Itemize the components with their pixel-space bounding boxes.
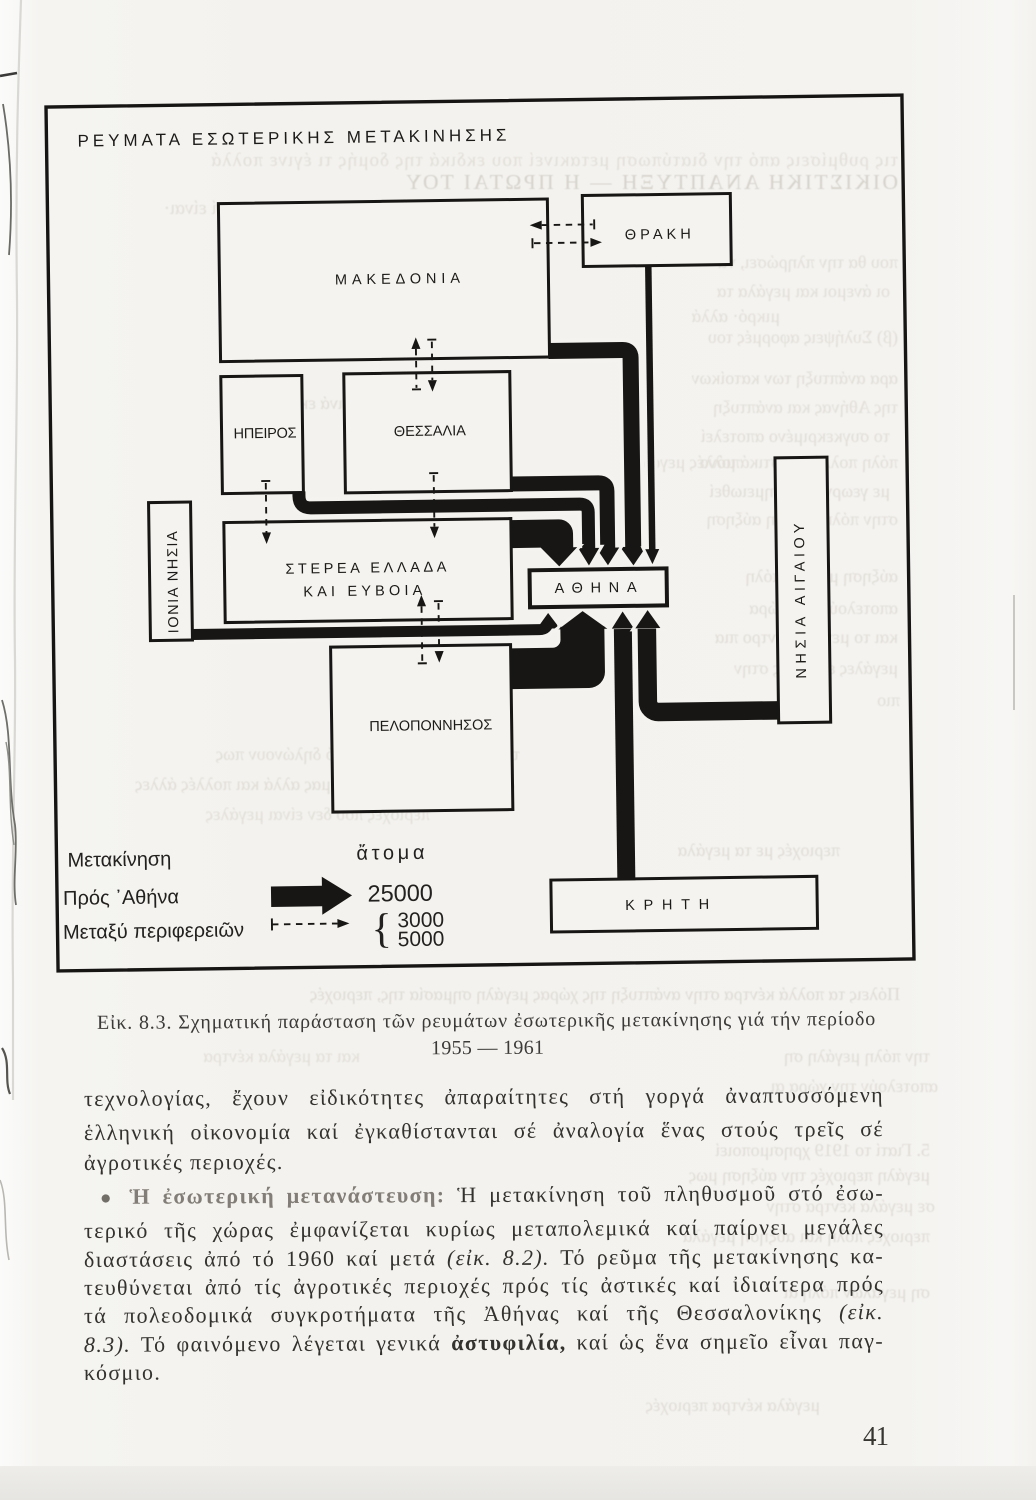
svg-text:ΝΗΣΙΑ ΑΙΓΑΙΟΥ: ΝΗΣΙΑ ΑΙΓΑΙΟΥ [792, 523, 810, 679]
svg-text:Μετακίνηση: Μετακίνηση [67, 848, 171, 871]
svg-text:Μεταξύ περιφερειῶν: Μεταξύ περιφερειῶν [63, 919, 244, 944]
svg-text:Πρός ᾽Αθήνα: Πρός ᾽Αθήνα [63, 886, 179, 910]
svg-text:5000: 5000 [398, 928, 445, 952]
svg-text:ΘΡΑΚΗ: ΘΡΑΚΗ [625, 227, 691, 244]
svg-text:ΡΕΥΜΑΤΑ ΕΣΩΤΕΡΙΚΗΣ ΜΕΤΑΚΙΝΗΣ: ΡΕΥΜΑΤΑ ΕΣΩΤΕΡΙΚΗΣ ΜΕΤΑΚΙΝΗΣΗΣ [77, 126, 506, 151]
svg-text:ΗΠΕΙΡΟΣ: ΗΠΕΙΡΟΣ [233, 426, 296, 443]
svg-text:ΣΤΕΡΕΑ ΕΛΛΑΔΑ: ΣΤΕΡΕΑ ΕΛΛΑΔΑ [285, 559, 447, 577]
svg-text:25000: 25000 [367, 880, 433, 907]
svg-text:ΜΑΚΕΔΟΝΙΑ: ΜΑΚΕΔΟΝΙΑ [335, 271, 461, 289]
svg-text:ΠΕΛΟΠΟΝΝΗΣΟΣ: ΠΕΛΟΠΟΝΝΗΣΟΣ [369, 717, 492, 735]
svg-text:ἄτομα: ἄτομα [356, 842, 424, 865]
svg-text:{: { [371, 906, 392, 952]
svg-text:ΘΕΣΣΑΛΙΑ: ΘΕΣΣΑΛΙΑ [394, 423, 467, 440]
svg-text:ΚΑΙ ΕΥΒΟΙΑ: ΚΑΙ ΕΥΒΟΙΑ [303, 583, 423, 601]
